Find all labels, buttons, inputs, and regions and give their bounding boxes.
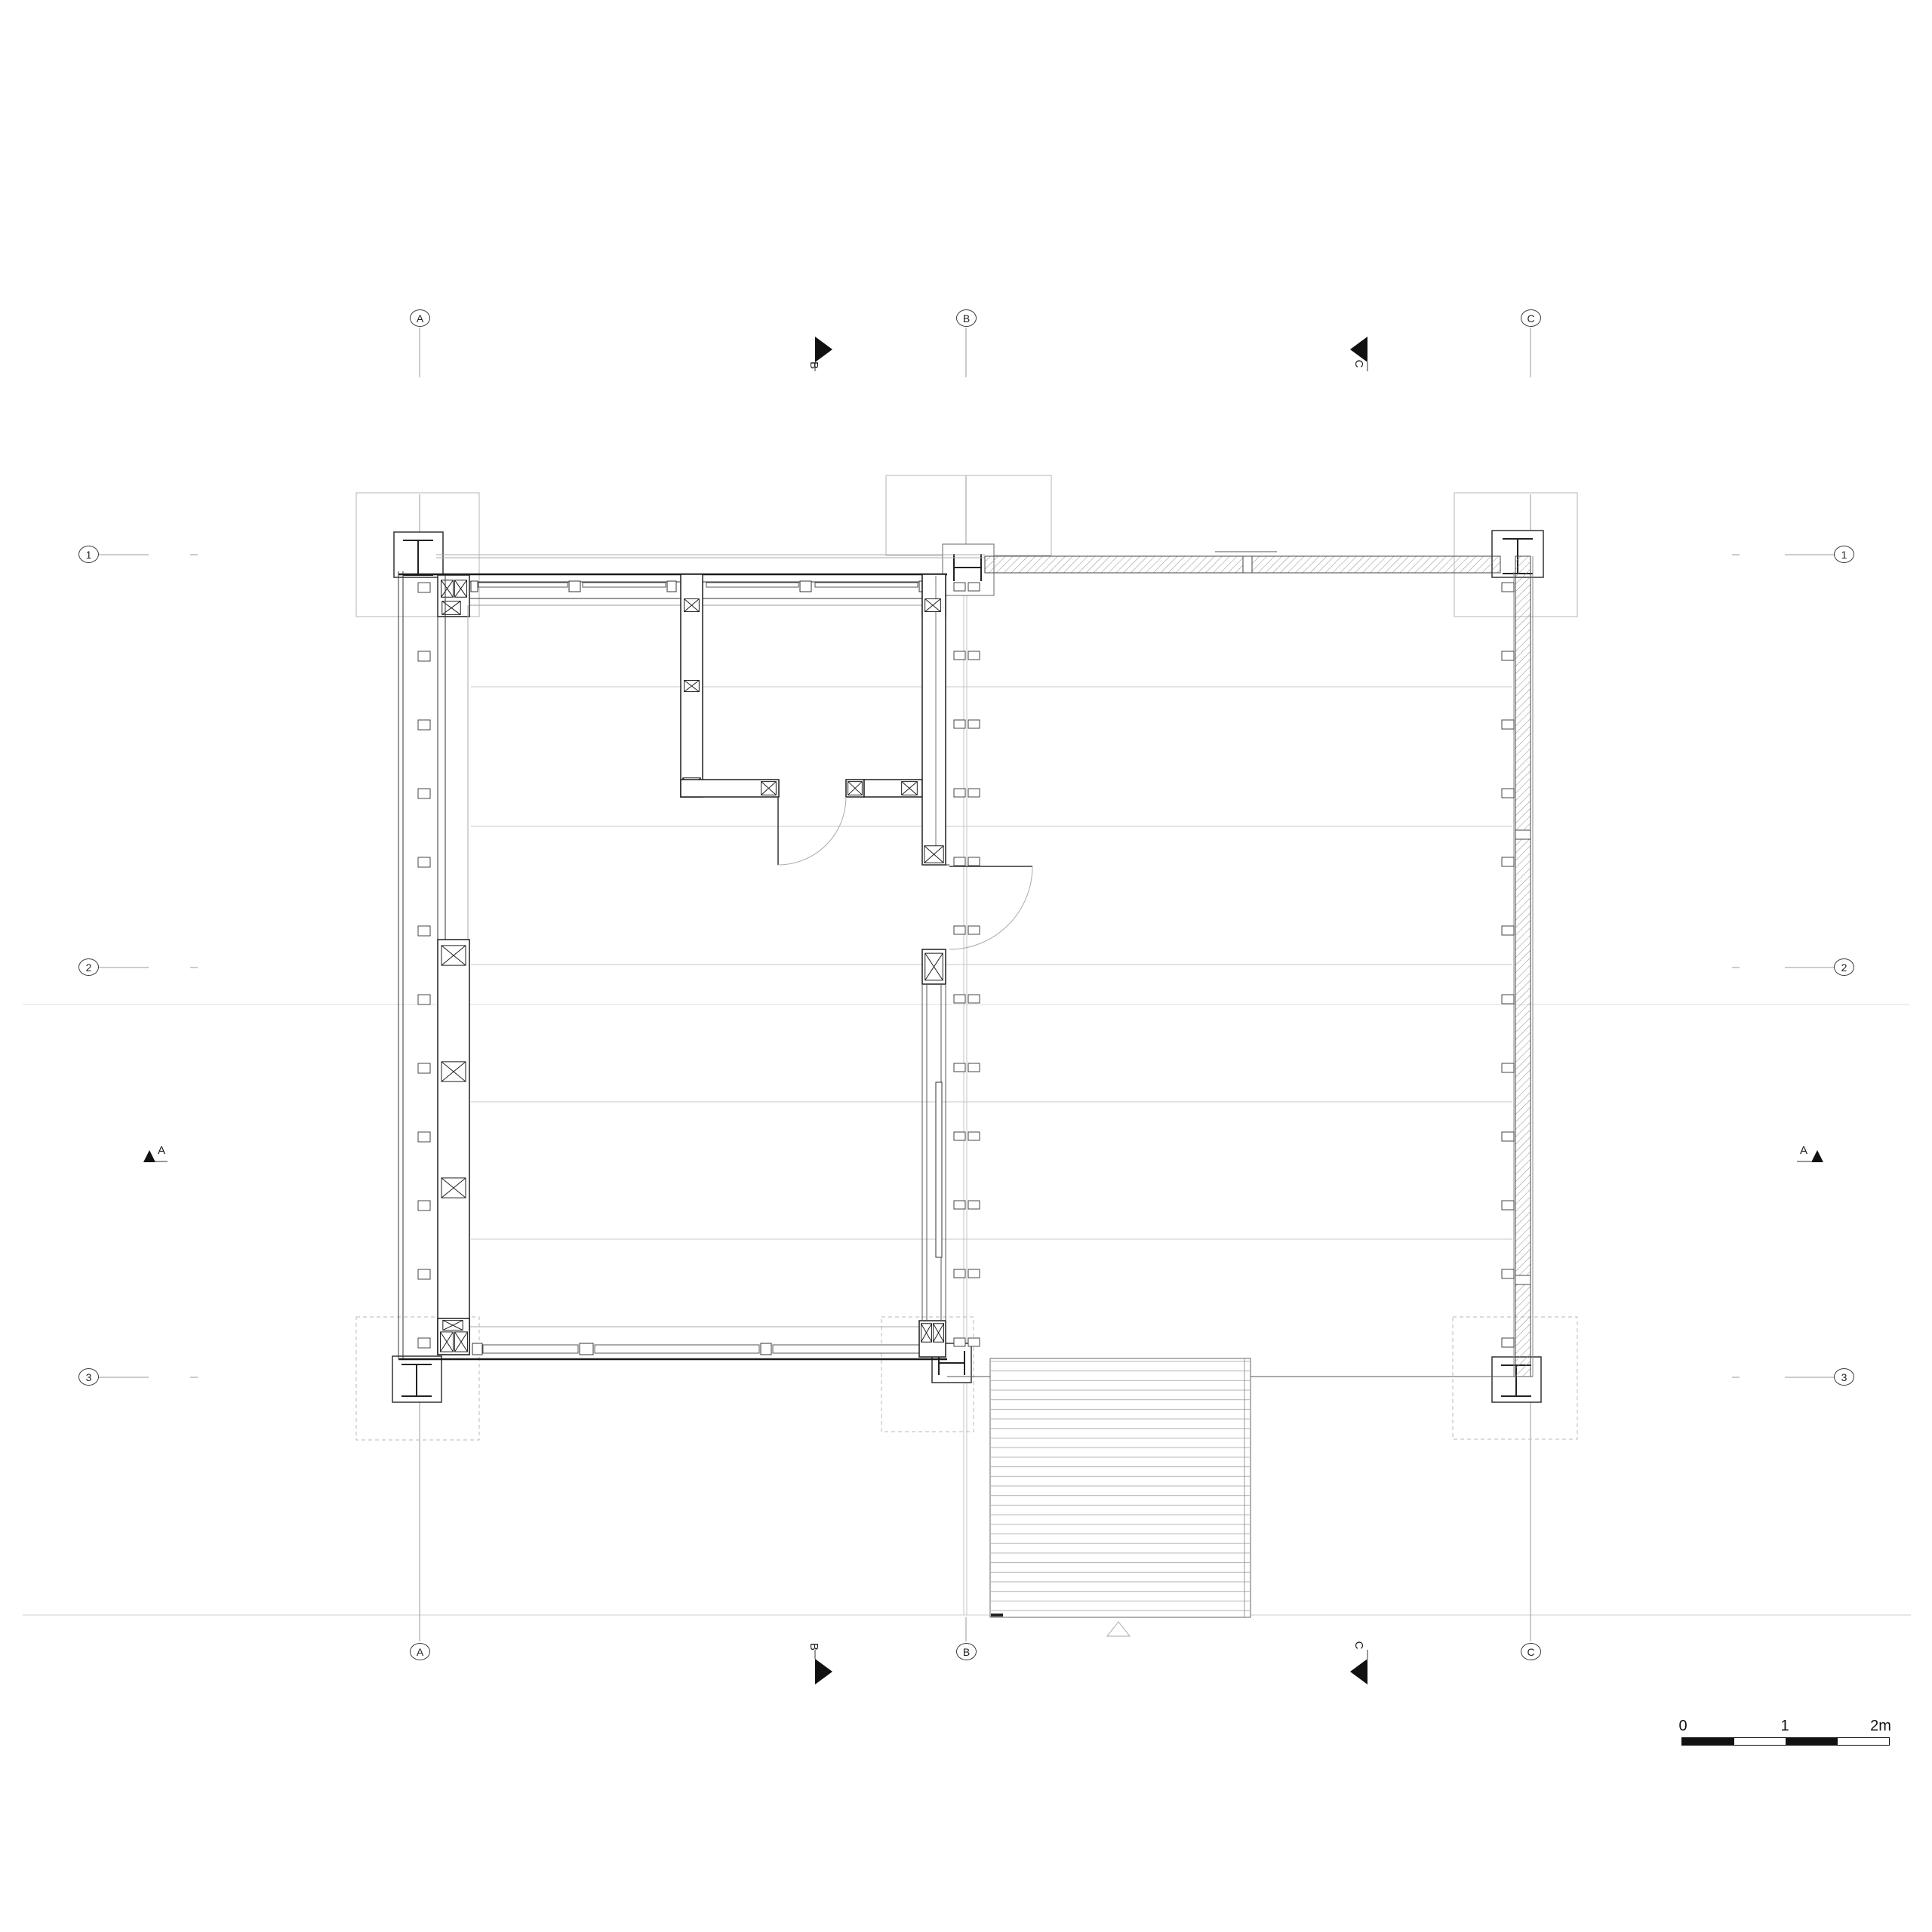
grid-bubble-row-3-right: 3 <box>1834 1368 1854 1386</box>
grid-label: C <box>1527 1646 1534 1658</box>
west-wall-nailers <box>418 583 430 1348</box>
scale-bar <box>1681 1737 1890 1746</box>
grid-bubble-row-3-left: 3 <box>78 1368 99 1386</box>
grid-bubble-row-1-right: 1 <box>1834 546 1854 563</box>
grid-bubble-row-2-right: 2 <box>1834 958 1854 976</box>
section-c-bottom-arrow-icon <box>1350 1659 1367 1684</box>
grid-label: A <box>417 312 423 325</box>
grid-lines <box>99 328 1834 1641</box>
grid-label: B <box>963 312 970 325</box>
inner-room-east-wall <box>922 574 946 865</box>
grid-bubble-row-1-left: 1 <box>78 546 99 563</box>
grid-label: 3 <box>86 1371 92 1383</box>
scale-tick-1: 1 <box>1770 1718 1800 1735</box>
grid-label: 3 <box>1841 1371 1847 1383</box>
section-a-right-arrow-icon <box>1811 1150 1823 1162</box>
south-wall-window-frames <box>472 1343 944 1355</box>
section-a-right-label: A <box>1796 1143 1811 1158</box>
section-b-top-label: B <box>807 358 822 373</box>
scale-bar-segment <box>1682 1738 1734 1745</box>
grid-b-wall-glazing <box>922 984 946 1321</box>
grid-label: C <box>1527 312 1534 325</box>
grid-bubble-col-c-bottom: C <box>1521 1643 1541 1660</box>
scale-tick-2m: 2m <box>1866 1718 1896 1735</box>
section-c-bottom-label: C <box>1352 1638 1367 1653</box>
grid-label: 1 <box>86 549 92 561</box>
southeast-corner-post <box>919 1321 946 1357</box>
door-grid-b-wall <box>922 865 1032 984</box>
section-b-bottom-label: B <box>807 1639 822 1654</box>
floor-plank-lines <box>471 687 1512 1239</box>
section-c-top-label: C <box>1352 356 1367 371</box>
grid-label: 2 <box>1841 961 1847 974</box>
scale-tick-0: 0 <box>1668 1718 1698 1735</box>
scale-bar-segment <box>1838 1738 1890 1745</box>
north-wall-splice <box>1243 556 1252 573</box>
grid-bubble-col-b-bottom: B <box>956 1643 977 1660</box>
grid-label: A <box>417 1646 423 1658</box>
left-module <box>398 571 947 1359</box>
east-wall-splice <box>1515 830 1531 839</box>
inner-room-south-wall <box>681 780 922 797</box>
grid-bubble-col-c-top: C <box>1521 309 1541 327</box>
east-wall-hatched <box>1515 556 1531 1377</box>
door-swing-arc <box>949 866 1032 949</box>
slope-direction-triangle <box>1107 1622 1130 1636</box>
west-wall-outer-face <box>398 571 403 1358</box>
grid-bubble-col-b-top: B <box>956 309 977 327</box>
floor-plan-sheet: A B C A B C 1 2 3 1 2 3 A A B C B C 0 1 … <box>0 0 1932 1932</box>
sliding-panel <box>936 1082 942 1257</box>
inner-room-west-wall <box>681 574 703 797</box>
east-wall-splice <box>1515 1275 1531 1284</box>
footing-b1 <box>886 475 1051 595</box>
northwest-corner-post <box>438 575 469 617</box>
grid-label: B <box>963 1646 970 1658</box>
section-a-left-label: A <box>154 1143 169 1158</box>
grid-bubble-col-a-top: A <box>410 309 430 327</box>
grid-label: 1 <box>1841 549 1847 561</box>
exterior-stairs <box>990 1358 1251 1636</box>
grid-bubble-row-2-left: 2 <box>78 958 99 976</box>
floor-plan-drawing <box>0 0 1932 1932</box>
scale-bar-segment <box>1734 1738 1786 1745</box>
grid-label: 2 <box>86 961 92 974</box>
door-inner-room <box>778 797 846 865</box>
grid-bubble-col-a-bottom: A <box>410 1643 430 1660</box>
section-b-bottom-arrow-icon <box>815 1659 832 1684</box>
door-swing-arc <box>778 797 846 865</box>
scale-bar-segment <box>1786 1738 1838 1745</box>
west-lining-wall <box>438 940 469 1355</box>
